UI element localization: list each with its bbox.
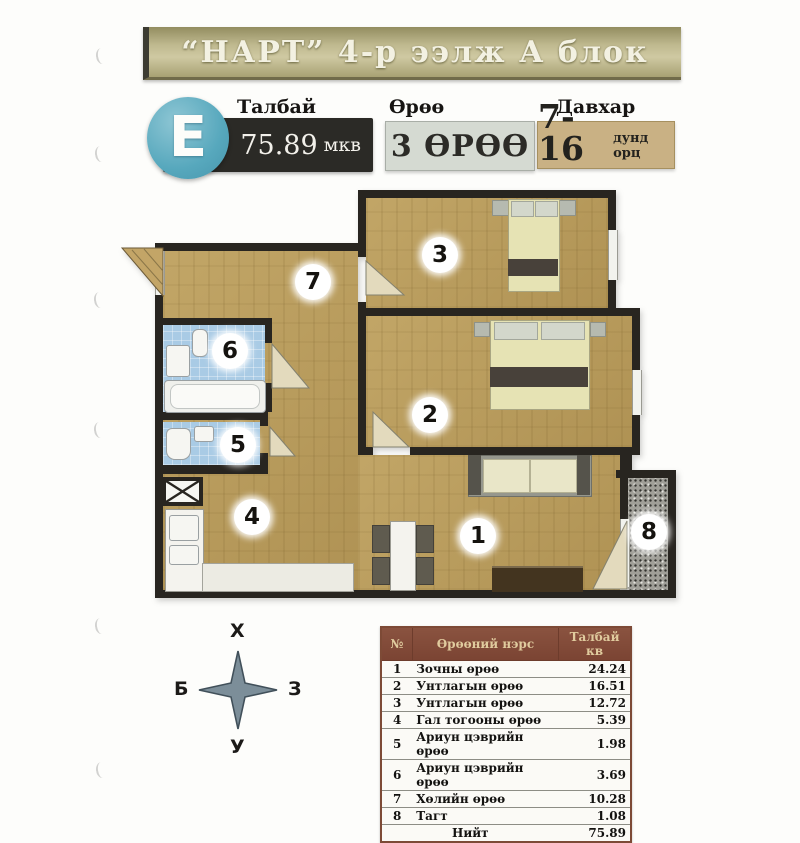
rooms-value: 3 ӨРӨӨ xyxy=(391,129,529,164)
rooms-label: Өрөө xyxy=(389,96,444,118)
compass-north-label: Х xyxy=(230,620,245,642)
compass-rose: Х З У Б xyxy=(168,620,308,765)
scan-artifact xyxy=(93,291,107,309)
room-marker-6: 6 xyxy=(212,333,248,369)
room-marker-8: 8 xyxy=(631,514,667,550)
title-banner: “НАРТ” 4-р ээлж А блок xyxy=(143,27,681,80)
door-swing-bathroom-5 xyxy=(270,427,295,456)
compass-south-label: У xyxy=(230,736,245,758)
room-area-table: № Өрөөний нэрс Талбай кв 1 Зочны өрөө 24… xyxy=(380,626,632,843)
door-swings-overlay xyxy=(120,185,680,603)
floor-plan: 1 2 3 4 5 6 7 8 xyxy=(120,185,680,603)
rooms-value-bar: 3 ӨРӨӨ xyxy=(385,121,535,171)
area-label: Талбай xyxy=(237,96,316,118)
room-marker-7: 7 xyxy=(295,264,331,300)
header-no: № xyxy=(381,627,412,661)
room-marker-3: 3 xyxy=(422,237,458,273)
total-label: Нийт xyxy=(381,825,559,843)
floor-value: 7-16 xyxy=(538,101,613,164)
entrance-door-icon xyxy=(122,248,163,296)
scan-artifact xyxy=(95,47,109,65)
scan-artifact xyxy=(95,761,109,779)
unit-type-letter: E xyxy=(169,110,207,166)
table-row: 3 Унтлагын өрөө 12.72 xyxy=(381,695,631,712)
table-row: 7 Хөлийн өрөө 10.28 xyxy=(381,791,631,808)
floor-value-bar: 7-16 дунд орц xyxy=(537,121,675,169)
table-row: 6 Ариун цэврийн өрөө 3.69 xyxy=(381,760,631,791)
compass-east-label: З xyxy=(288,678,302,700)
table-row: 5 Ариун цэврийн өрөө 1.98 xyxy=(381,729,631,760)
header-name: Өрөөний нэрс xyxy=(412,627,558,661)
room-marker-1: 1 xyxy=(460,518,496,554)
scan-artifact xyxy=(94,617,108,635)
table-row: 8 Тагт 1.08 xyxy=(381,808,631,825)
door-swing-bathroom-6 xyxy=(272,344,309,388)
table-row: 2 Унтлагын өрөө 16.51 xyxy=(381,678,631,695)
door-swing-balcony xyxy=(593,521,627,589)
unit-type-badge: E xyxy=(147,97,229,179)
door-swing-bedroom-3 xyxy=(366,261,404,295)
area-value: 75.89 xyxy=(240,130,323,161)
compass-star-icon xyxy=(196,648,280,732)
table-header-row: № Өрөөний нэрс Талбай кв xyxy=(381,627,631,661)
room-marker-4: 4 xyxy=(234,499,270,535)
room-marker-2: 2 xyxy=(412,397,448,433)
scanned-floorplan-page: { "banner": { "title": "“НАРТ” 4-р ээлж … xyxy=(0,0,800,800)
compass-west-label: Б xyxy=(174,678,188,700)
scan-artifact xyxy=(94,145,108,163)
page-title: “НАРТ” 4-р ээлж А блок xyxy=(181,35,649,70)
table-row: 1 Зочны өрөө 24.24 xyxy=(381,661,631,678)
table-row: 4 Гал тогооны өрөө 5.39 xyxy=(381,712,631,729)
area-unit: мкв xyxy=(324,134,373,156)
header-area: Талбай кв xyxy=(559,627,631,661)
scan-artifact xyxy=(93,421,107,439)
floor-note: дунд орц xyxy=(613,131,674,164)
room-marker-5: 5 xyxy=(220,427,256,463)
total-value: 75.89 xyxy=(559,825,631,843)
table-total-row: Нийт 75.89 xyxy=(381,825,631,843)
door-swing-bedroom-2 xyxy=(373,412,409,447)
